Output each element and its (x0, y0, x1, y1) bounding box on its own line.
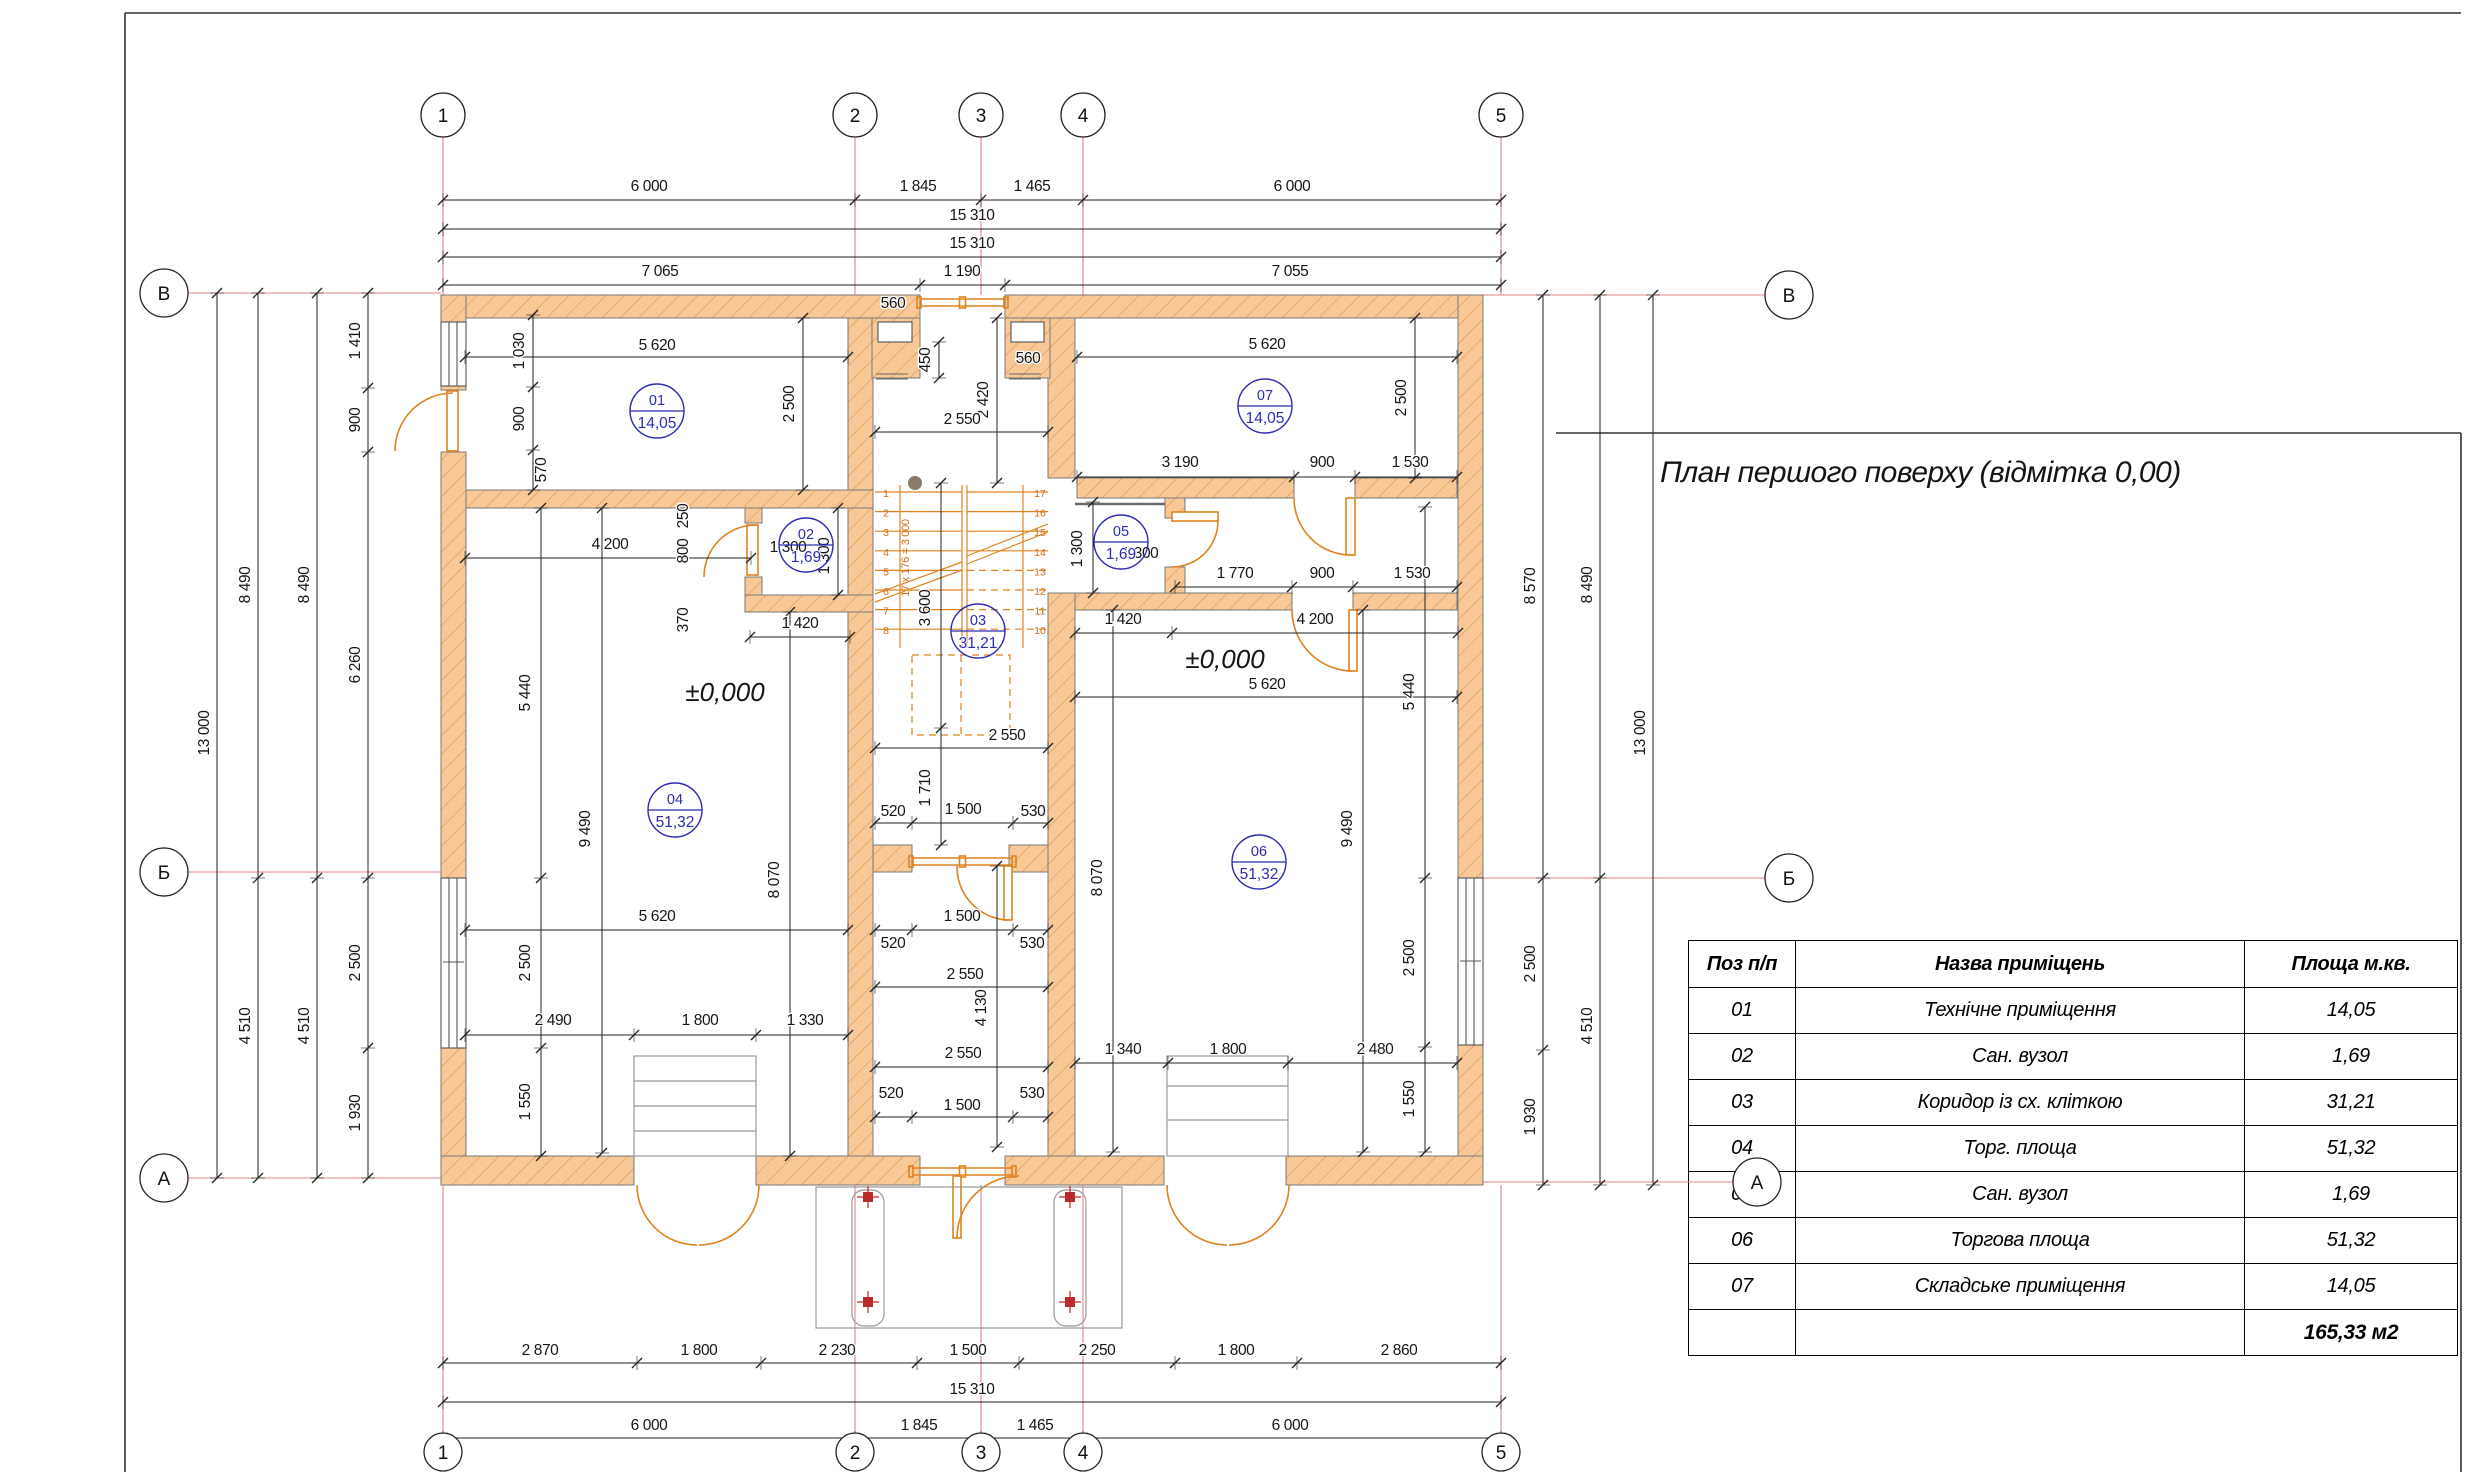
dimension-label: 1 550 (517, 1083, 534, 1121)
axis-label: Б (1783, 869, 1795, 890)
axis-bubble-5: 5 (1482, 1433, 1520, 1471)
axis-bubble-2: 2 (836, 1433, 874, 1471)
level-mark: ±0,000 (1185, 644, 1265, 674)
stair-newel-post (908, 476, 922, 490)
dimension-label: 1 800 (681, 1342, 719, 1359)
dimension-label: 2 550 (945, 1045, 983, 1062)
stair-step-number: 1 (883, 488, 889, 500)
dimension-label: 1 530 (1392, 454, 1430, 471)
room-label-02: 021,69 (779, 518, 833, 572)
dimension-label: 1 300 (1069, 530, 1086, 568)
dimension-label: 2 230 (819, 1342, 857, 1359)
dimension-label: 1 930 (347, 1094, 364, 1132)
dimension-label: 2 480 (1357, 1041, 1395, 1058)
room-area: 51,32 (656, 814, 695, 831)
dimension-label: 1 710 (917, 769, 934, 807)
dimension-label: 6 000 (631, 1417, 669, 1434)
room-label-01: 0114,05 (630, 384, 684, 438)
dimension-label: 2 500 (781, 385, 798, 423)
dimension-label: 2 550 (944, 411, 982, 428)
dimension-label: 1 800 (682, 1012, 720, 1029)
axis-label: 2 (850, 1443, 861, 1464)
axis-bubble-3: 3 (959, 93, 1003, 137)
dimension-label: 520 (881, 935, 906, 952)
stair-step-number: 8 (883, 625, 889, 637)
drawing-sheet: План першого поверху (відмітка 0,00) Поз… (0, 0, 2480, 1472)
dimension-label: 1 420 (782, 615, 820, 632)
dimension-label: 2 870 (522, 1342, 560, 1359)
stair-formula-note: 17 х 176 = 3 000 (900, 519, 912, 597)
dimension-label: 5 440 (1401, 673, 1418, 711)
axis-bubble-4: 4 (1064, 1433, 1102, 1471)
axis-label: А (158, 1169, 171, 1190)
dimension-label: 900 (347, 407, 364, 432)
stair-step-number: 11 (1035, 606, 1046, 618)
dimension-label: 2 500 (517, 944, 534, 982)
axis-label: 5 (1496, 106, 1507, 127)
dimension-label: 6 260 (347, 646, 364, 684)
dimension-label: 6 000 (1272, 1417, 1310, 1434)
dimension-label: 8 490 (237, 566, 254, 604)
dimension-label: 1 770 (1217, 565, 1255, 582)
dimension-label: 1 465 (1017, 1417, 1054, 1434)
stair-step-number: 4 (883, 547, 889, 559)
dimension-label: 5 620 (1249, 676, 1287, 693)
level-mark: ±0,000 (685, 677, 765, 707)
axis-bubble-В: В (1765, 271, 1813, 319)
floor-plan-canvas: 12345678171615141312111017 х 176 = 3 000… (0, 0, 2480, 1472)
axis-label: 1 (438, 1443, 449, 1464)
dimension-label: 5 620 (639, 908, 677, 925)
axis-bubble-1: 1 (421, 93, 465, 137)
dimension-label: 5 620 (639, 337, 677, 354)
axis-bubble-А: А (140, 1154, 188, 1202)
dimension-label: 2 500 (1401, 939, 1418, 977)
axis-bubble-Б: Б (140, 848, 188, 896)
dimension-label: 4 200 (592, 536, 630, 553)
dimension-label: 530 (1021, 803, 1046, 820)
dimension-label: 2 500 (1522, 945, 1539, 983)
dimension-label: 1 500 (944, 1097, 982, 1114)
room-area: 14,05 (638, 415, 677, 432)
dimension-label: 1 930 (1522, 1098, 1539, 1136)
stair-step-number: 15 (1034, 527, 1046, 539)
dimension-label: 1 845 (901, 1417, 938, 1434)
axis-bubble-5: 5 (1479, 93, 1523, 137)
axis-label: 3 (976, 1443, 987, 1464)
room-label-06: 0651,32 (1232, 835, 1286, 889)
dimension-label: 5 440 (517, 674, 534, 712)
dimension-label: 3 190 (1162, 454, 1200, 471)
dimension-label: 6 000 (1274, 178, 1312, 195)
dimension-label: 13 000 (196, 710, 213, 756)
dimension-label: 15 310 (949, 207, 995, 224)
dimension-label: 1 420 (1105, 611, 1143, 628)
room-area: 1,69 (1106, 546, 1136, 563)
dimension-label: 15 310 (949, 1381, 995, 1398)
axis-label: А (1751, 1173, 1764, 1194)
dimension-label: 450 (917, 347, 934, 372)
room-area: 51,32 (1240, 866, 1279, 883)
axis-bubble-Б: Б (1765, 854, 1813, 902)
dimension-label: 560 (881, 295, 906, 312)
axis-label: 4 (1078, 106, 1089, 127)
dimension-label: 4 130 (973, 989, 990, 1027)
room-number: 06 (1251, 844, 1267, 860)
dimension-label: 5 620 (1249, 336, 1287, 353)
dimension-label: 7 055 (1272, 263, 1309, 280)
dimension-label: 1 500 (944, 908, 982, 925)
dimension-label: 530 (1020, 1085, 1045, 1102)
room-label-05: 051,69 (1094, 515, 1148, 569)
room-label-03: 0331,21 (951, 604, 1005, 658)
stair-step-number: 3 (883, 527, 889, 539)
axis-label: 5 (1496, 1443, 1507, 1464)
stair-step-number: 10 (1034, 625, 1046, 637)
dimension-label: 7 065 (642, 263, 679, 280)
dimension-label: 13 000 (1632, 710, 1649, 756)
stair-step-number: 6 (883, 586, 889, 598)
axis-bubble-4: 4 (1061, 93, 1105, 137)
dimension-label: 8 490 (1579, 566, 1596, 604)
room-number: 03 (970, 613, 986, 629)
room-label-04: 0451,32 (648, 783, 702, 837)
dimension-label: 2 250 (1079, 1342, 1117, 1359)
dimension-label: 1 800 (1210, 1041, 1248, 1058)
dimension-label: 15 310 (949, 235, 995, 252)
stair-step-number: 7 (883, 606, 889, 618)
room-number: 01 (649, 393, 665, 409)
dimension-label: 3 600 (917, 589, 934, 627)
axis-bubble-В: В (140, 269, 188, 317)
dimension-label: 2 550 (989, 727, 1027, 744)
room-area: 1,69 (791, 549, 821, 566)
axis-bubble-2: 2 (833, 93, 877, 137)
room-area: 14,05 (1246, 410, 1285, 427)
stair-step-number: 16 (1034, 508, 1046, 520)
stair-step-number: 13 (1034, 566, 1046, 578)
dimension-label: 1 550 (1401, 1080, 1418, 1118)
dimension-label: 1 030 (511, 332, 528, 370)
dimension-label: 370 (675, 607, 692, 632)
dimension-label: 250 (675, 503, 692, 528)
dimension-label: 9 490 (577, 810, 594, 848)
axis-label: 1 (438, 106, 449, 127)
axis-label: 3 (976, 106, 987, 127)
stair-step-number: 12 (1034, 586, 1046, 598)
dimension-label: 8 070 (1089, 859, 1106, 897)
dimension-label: 520 (879, 1085, 904, 1102)
room-number: 07 (1257, 388, 1273, 404)
dimension-label: 900 (511, 406, 528, 431)
dimension-label: 1 845 (900, 178, 937, 195)
dimension-label: 8 070 (766, 861, 783, 899)
room-number: 02 (798, 527, 814, 543)
dimension-label: 6 000 (631, 178, 669, 195)
dimension-label: 1 500 (945, 801, 983, 818)
stair-step-number: 17 (1034, 488, 1046, 500)
dimension-label: 8 490 (296, 566, 313, 604)
dimension-label: 530 (1020, 935, 1045, 952)
axis-label: Б (158, 863, 170, 884)
dimension-label: 520 (881, 803, 906, 820)
dimension-label: 800 (675, 538, 692, 563)
dimension-label: 1 465 (1014, 178, 1051, 195)
axis-label: 4 (1078, 1443, 1089, 1464)
dimension-label: 2 860 (1381, 1342, 1419, 1359)
dimension-label: 4 510 (237, 1007, 254, 1045)
stair-step-number: 5 (883, 566, 889, 578)
room-area: 31,21 (959, 635, 998, 652)
dimension-label: 9 490 (1339, 810, 1356, 848)
axis-label: В (1783, 286, 1796, 307)
dimension-label: 2 500 (1393, 379, 1410, 417)
stair-step-number: 14 (1034, 547, 1046, 559)
dimension-label: 2 500 (347, 944, 364, 982)
dimension-label: 8 570 (1522, 567, 1539, 605)
stair-step-number: 2 (883, 508, 889, 520)
dimension-label: 1 340 (1105, 1041, 1143, 1058)
dimension-label: 4 510 (296, 1007, 313, 1045)
dimension-label: 560 (1016, 350, 1041, 367)
dimension-label: 2 490 (535, 1012, 573, 1029)
room-number: 05 (1113, 524, 1129, 540)
dimension-label: 4 510 (1579, 1007, 1596, 1045)
dimension-label: 1 330 (787, 1012, 825, 1029)
axis-label: В (158, 284, 171, 305)
dimension-label: 1 500 (950, 1342, 988, 1359)
room-number: 04 (667, 792, 683, 808)
axis-bubble-1: 1 (424, 1433, 462, 1471)
dimension-label: 1 530 (1394, 565, 1432, 582)
dimension-label: 4 200 (1297, 611, 1335, 628)
room-label-07: 0714,05 (1238, 379, 1292, 433)
dimension-label: 1 190 (944, 263, 982, 280)
axis-bubble-А: А (1733, 1158, 1781, 1206)
dimension-label: 900 (1310, 454, 1335, 471)
axis-bubble-3: 3 (962, 1433, 1000, 1471)
dimension-label: 1 410 (347, 322, 364, 360)
axis-label: 2 (850, 106, 861, 127)
dimension-label: 570 (533, 457, 550, 482)
dimension-label: 2 550 (947, 966, 985, 983)
dimension-label: 1 800 (1218, 1342, 1256, 1359)
dimension-label: 900 (1310, 565, 1335, 582)
